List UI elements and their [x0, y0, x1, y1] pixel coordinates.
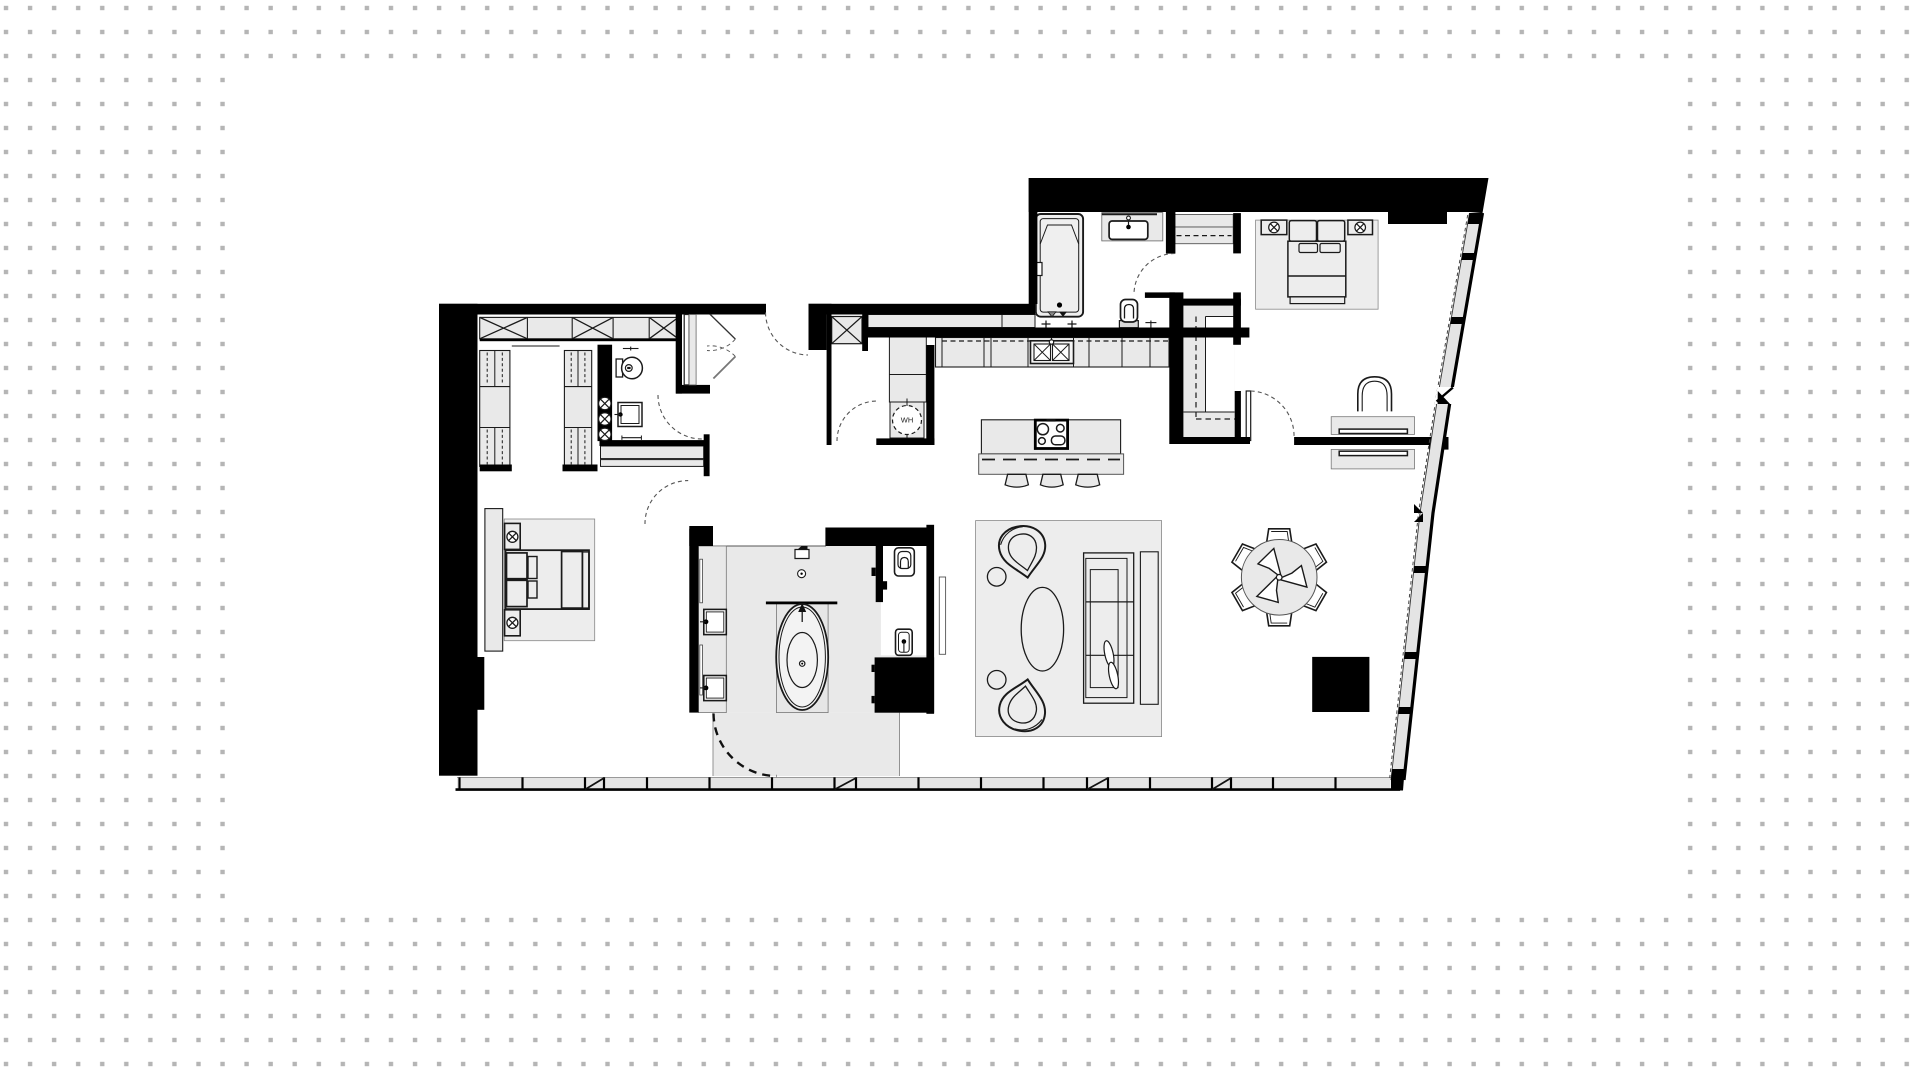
svg-text:WH: WH: [901, 416, 914, 425]
